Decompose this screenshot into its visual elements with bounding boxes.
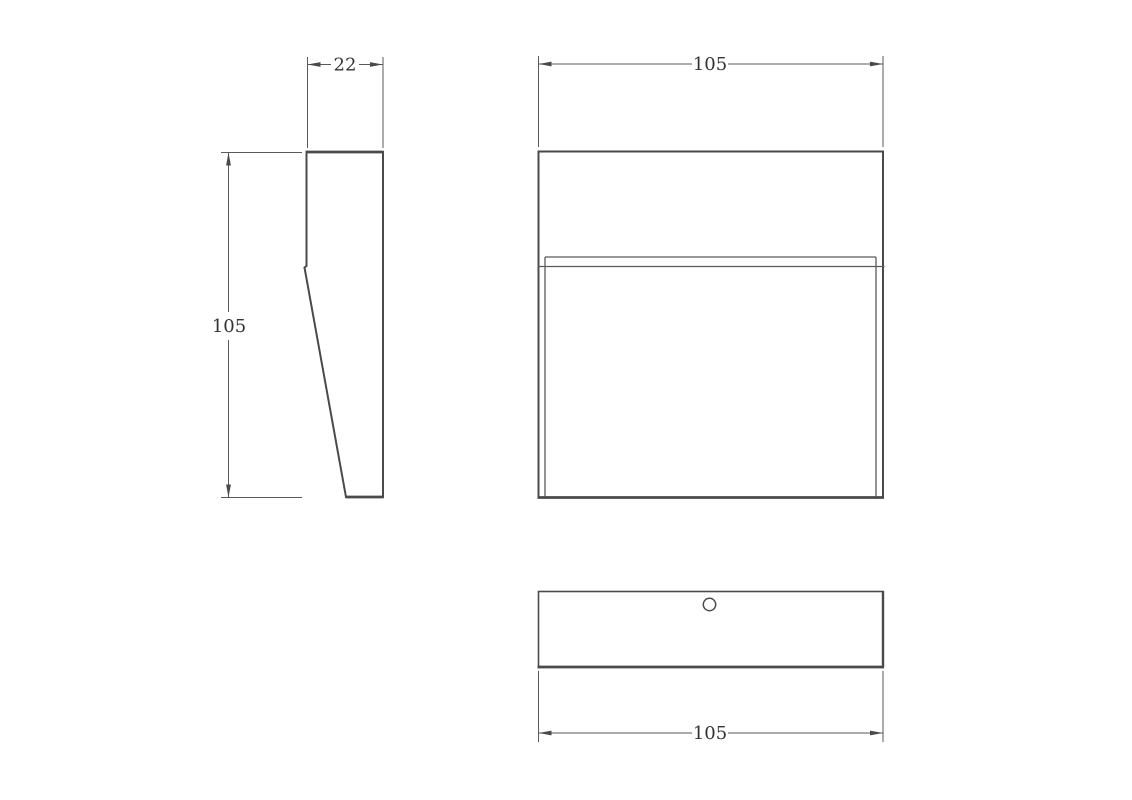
arrowhead-down [226,485,231,498]
dimension-value-bottom-width: 105 [693,723,727,744]
side-view-outline [305,152,384,497]
dimension-value-side-width: 22 [334,55,357,76]
arrowhead-right [870,731,883,736]
front-view-outline [539,152,884,498]
dimension-bottom-width: 105 [539,671,884,744]
drawing-svg: 22 105 105 [0,0,1132,800]
bottom-view-outline [539,592,884,668]
arrowhead-up [226,153,231,166]
arrowhead-left [539,731,552,736]
arrowhead-right [870,62,883,67]
dimension-front-width: 105 [539,54,884,147]
dimension-value-front-width: 105 [693,54,727,75]
technical-drawing-page: 22 105 105 [0,0,1132,800]
arrowhead-left [539,62,552,67]
mounting-hole [703,598,715,610]
side-view [305,152,384,497]
arrowhead-left [308,62,321,67]
dimension-side-height: 105 [212,153,302,498]
dimension-value-side-height: 105 [212,316,246,337]
dimension-side-width: 22 [308,55,384,149]
front-view [538,152,885,498]
bottom-view [538,591,885,668]
arrowhead-right [370,62,383,67]
